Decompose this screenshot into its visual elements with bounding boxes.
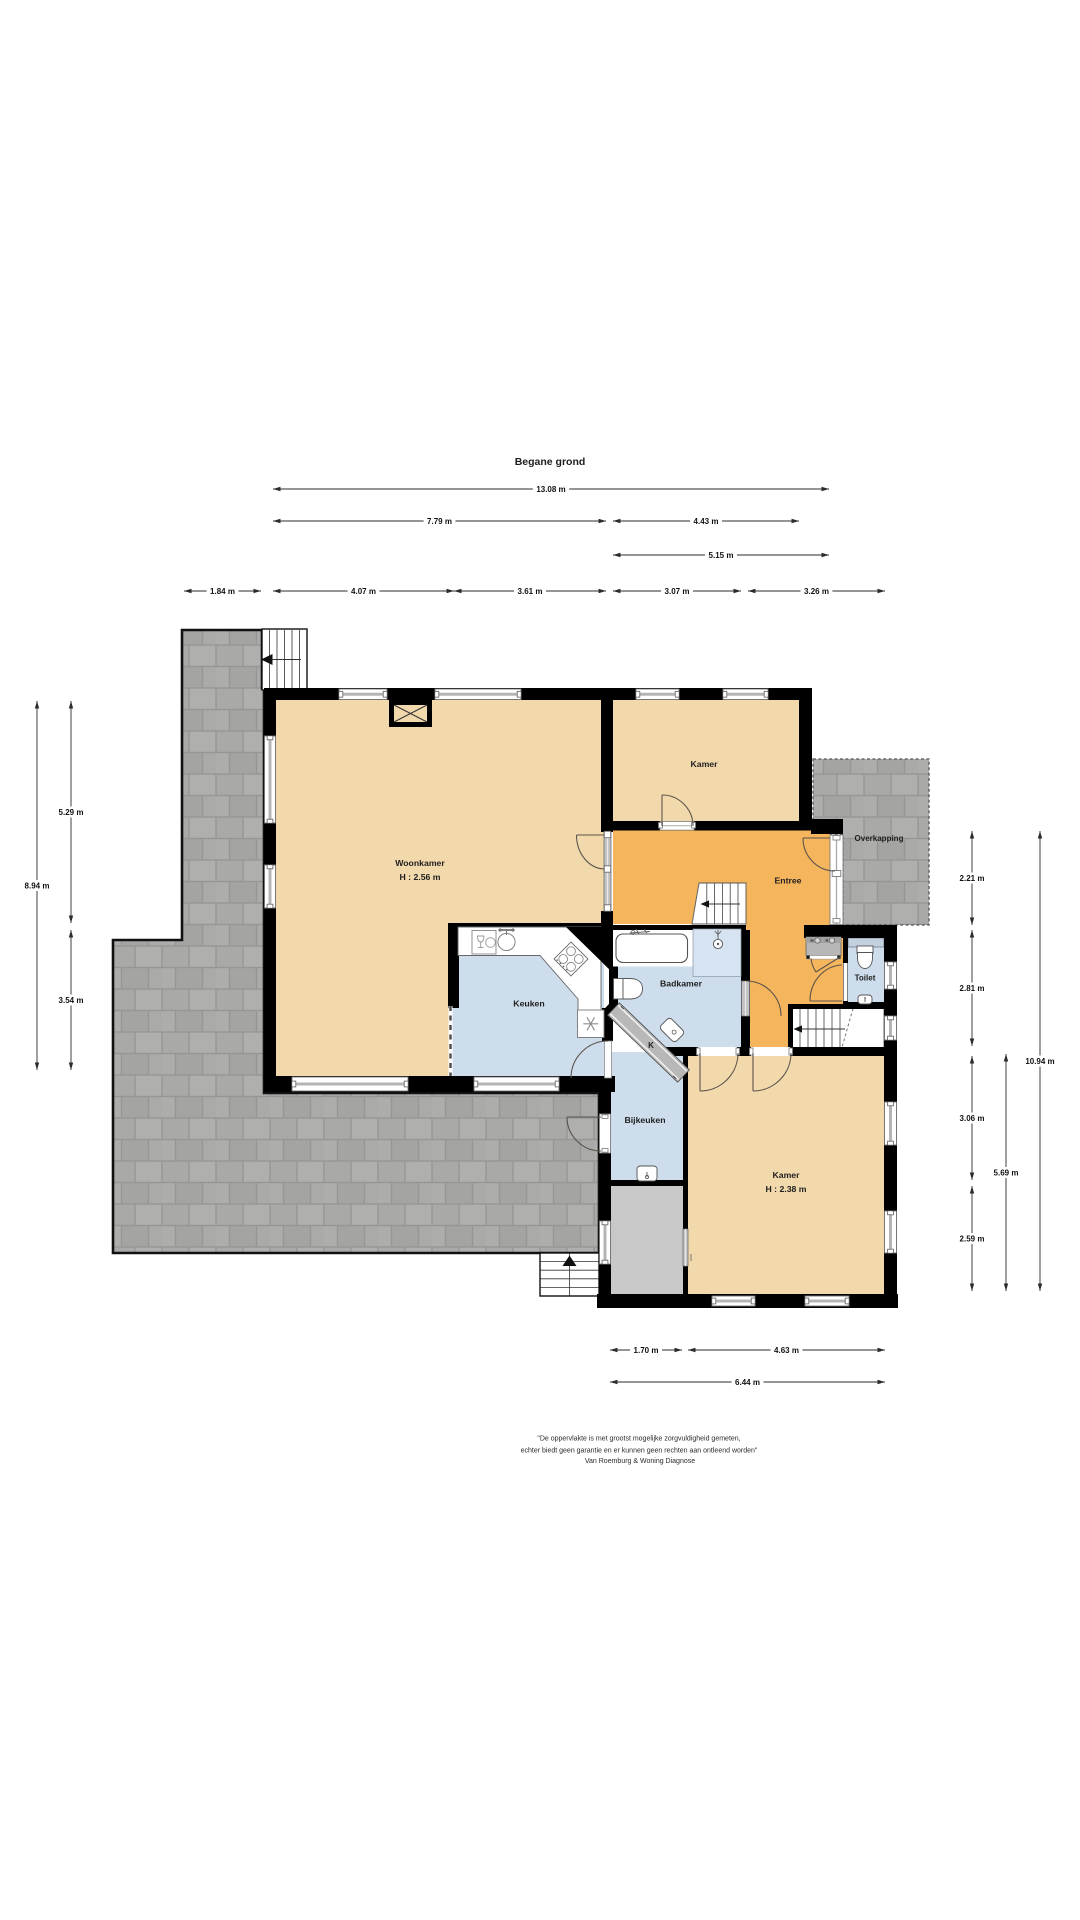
svg-text:4.63 m: 4.63 m [774,1346,799,1355]
svg-text:echter biedt geen garantie en: echter biedt geen garantie en er kunnen … [521,1448,758,1455]
svg-text:5.69 m: 5.69 m [994,1168,1019,1177]
svg-text:Van Roemburg & Woning Diagnose: Van Roemburg & Woning Diagnose [585,1458,695,1465]
svg-text:3.26 m: 3.26 m [804,587,829,596]
svg-text:H : 2.56 m: H : 2.56 m [399,872,440,882]
svg-text:5.29 m: 5.29 m [59,808,84,817]
svg-text:Kamer: Kamer [772,1170,800,1180]
svg-text:Kamer: Kamer [690,759,718,769]
svg-text:Bijkeuken: Bijkeuken [624,1115,665,1125]
svg-text:8.94 m: 8.94 m [25,881,50,890]
svg-text:3.07 m: 3.07 m [665,587,690,596]
svg-text:Toilet: Toilet [855,974,876,983]
svg-text:Keuken: Keuken [513,999,544,1009]
svg-text:4.07 m: 4.07 m [351,587,376,596]
svg-text:10.94 m: 10.94 m [1025,1057,1054,1066]
svg-text:Woonkamer: Woonkamer [395,858,445,868]
svg-text:1.84 m: 1.84 m [210,587,235,596]
svg-text:Badkamer: Badkamer [660,979,703,989]
svg-text:4.43 m: 4.43 m [694,517,719,526]
svg-text:"De oppervlakte is met grootst: "De oppervlakte is met grootst mogelijke… [537,1436,740,1443]
svg-text:2.21 m: 2.21 m [960,874,985,883]
svg-text:7.79 m: 7.79 m [427,517,452,526]
svg-text:2.59 m: 2.59 m [960,1234,985,1243]
svg-text:Overkapping: Overkapping [855,834,904,843]
svg-text:2.81 m: 2.81 m [960,984,985,993]
svg-text:3.61 m: 3.61 m [518,587,543,596]
svg-text:Entree: Entree [774,876,801,886]
svg-text:3.06 m: 3.06 m [960,1114,985,1123]
svg-text:3.54 m: 3.54 m [59,996,84,1005]
svg-text:H : 2.38 m: H : 2.38 m [765,1184,806,1194]
svg-text:Begane grond: Begane grond [515,456,586,468]
svg-text:K: K [648,1041,654,1050]
svg-text:1.70 m: 1.70 m [634,1346,659,1355]
svg-text:13.08 m: 13.08 m [536,485,565,494]
svg-text:6.44 m: 6.44 m [735,1378,760,1387]
svg-text:5.15 m: 5.15 m [709,551,734,560]
